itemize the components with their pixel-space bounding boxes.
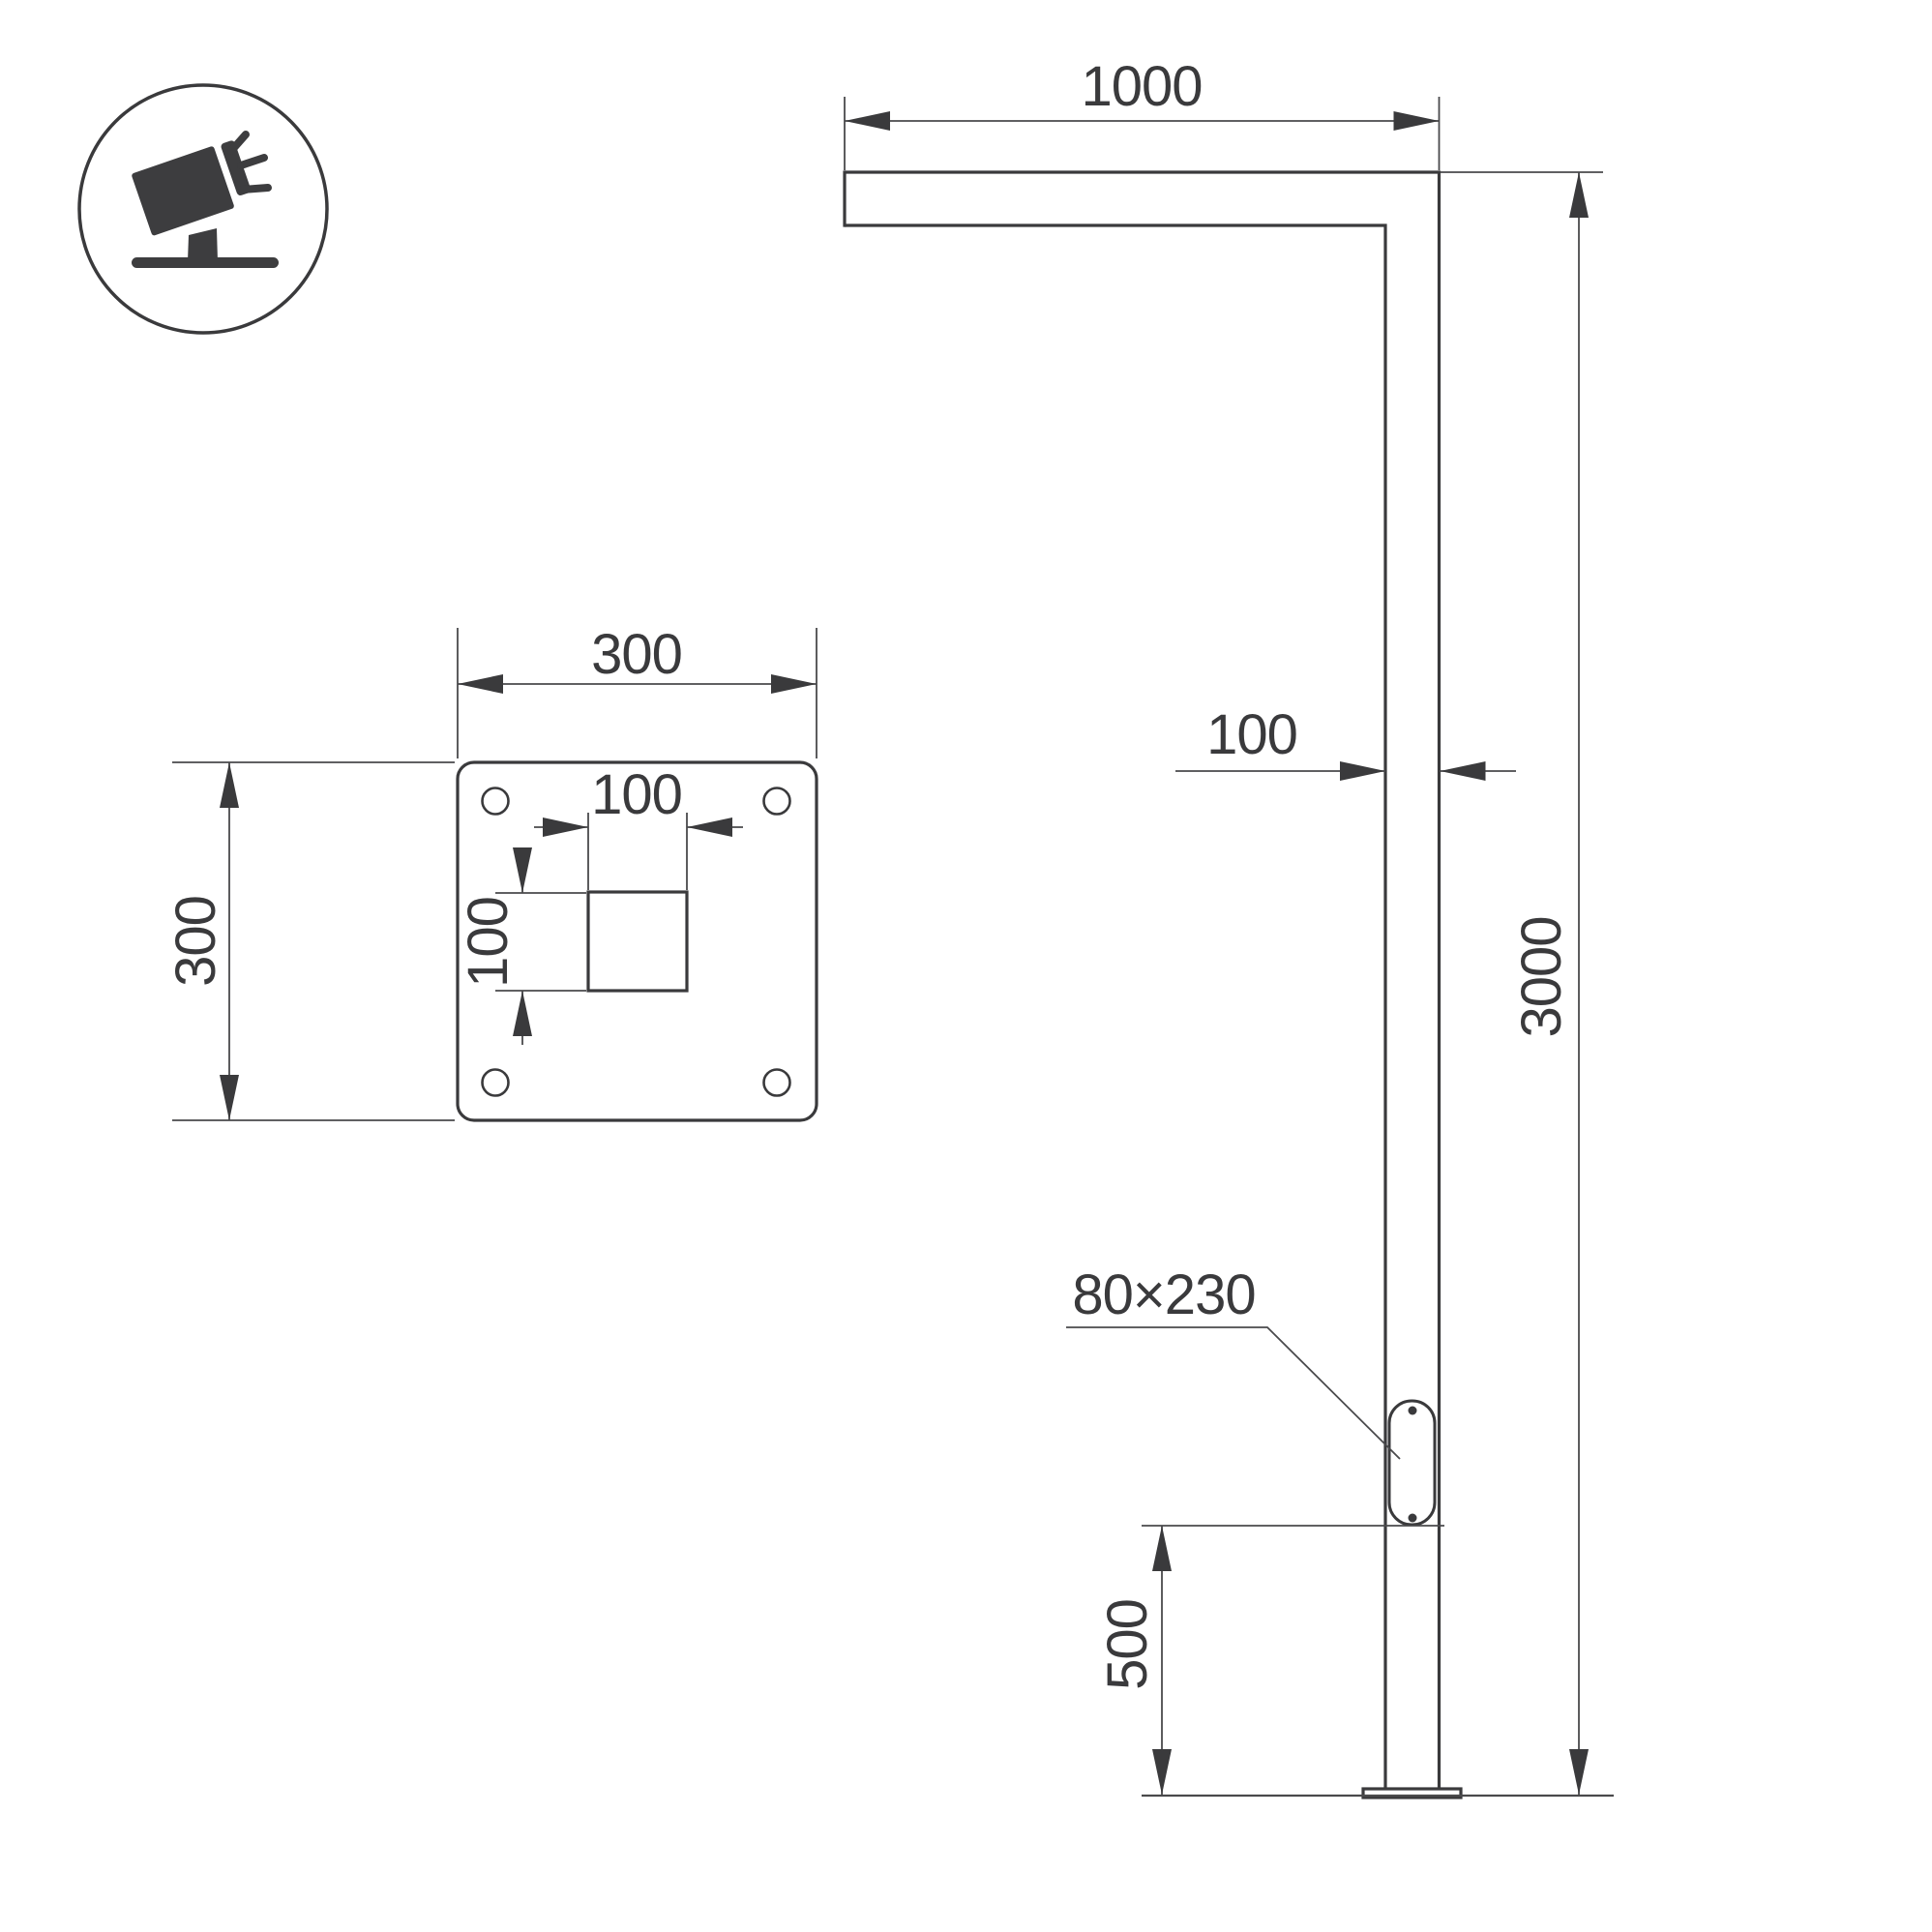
light-ray-icon [242,188,268,190]
drawing-svg: 300 300 100 100 1000 [0,0,1932,1932]
dim-label-plate-height: 300 [164,896,227,987]
bolt-hole-top-right [764,788,790,815]
door-size-label: 80×230 [1072,1263,1255,1326]
light-ray-icon [231,134,246,151]
dim-label-plate-width: 300 [591,623,682,686]
dim-label-arm-length: 1000 [1081,55,1202,118]
dim-label-pole-width: 100 [1206,703,1297,766]
pole-inner-outline [845,225,1385,1789]
tilted-floodlight-icon [79,85,327,333]
light-ray-icon [241,158,264,165]
bolt-hole-bottom-right [764,1070,790,1096]
plate-center-square [588,892,687,991]
dim-label-door-height: 500 [1096,1599,1159,1690]
dim-label-pole-height: 3000 [1510,916,1573,1037]
base-plate-view: 300 300 100 100 [164,623,817,1120]
door-leader-line [1066,1327,1400,1459]
floodlight-stand [188,228,218,261]
dim-label-square-width: 100 [591,763,682,826]
door-screw-bottom [1409,1514,1417,1523]
floodlight-body [131,146,234,237]
door-screw-top [1409,1407,1417,1415]
pole-side-view: 1000 100 3000 80×230 500 [845,55,1614,1798]
dim-label-square-height: 100 [457,897,520,988]
bolt-hole-bottom-left [483,1070,509,1096]
access-door [1389,1401,1435,1525]
technical-drawing-page: 300 300 100 100 1000 [0,0,1932,1932]
pole-outer-outline [845,172,1440,1789]
bolt-hole-top-left [483,788,509,815]
floodlight-base [132,257,279,268]
